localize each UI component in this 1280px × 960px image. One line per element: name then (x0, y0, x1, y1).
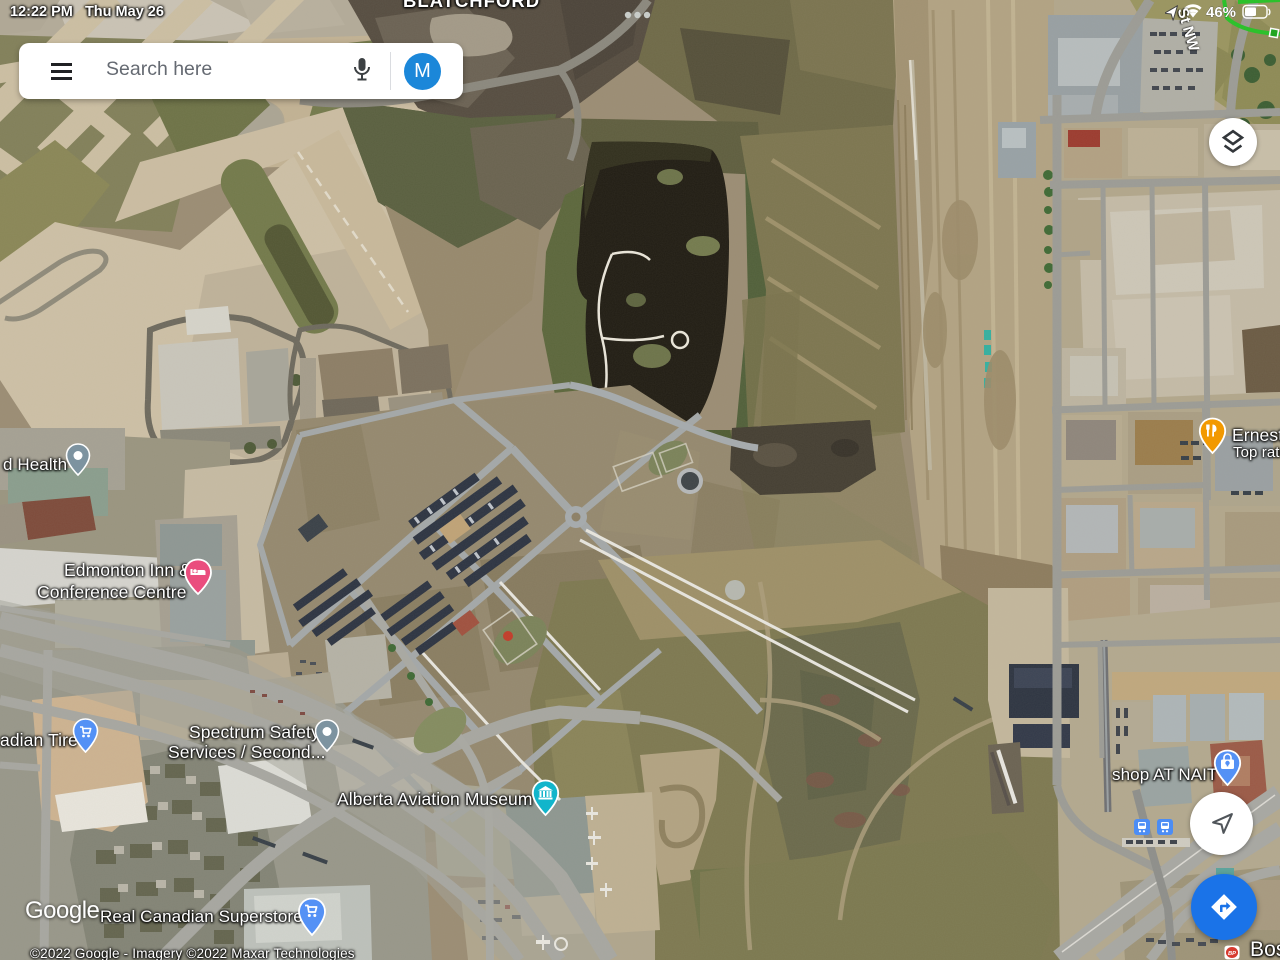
svg-text:BP: BP (1228, 951, 1236, 957)
svg-text:46%: 46% (1206, 4, 1236, 21)
